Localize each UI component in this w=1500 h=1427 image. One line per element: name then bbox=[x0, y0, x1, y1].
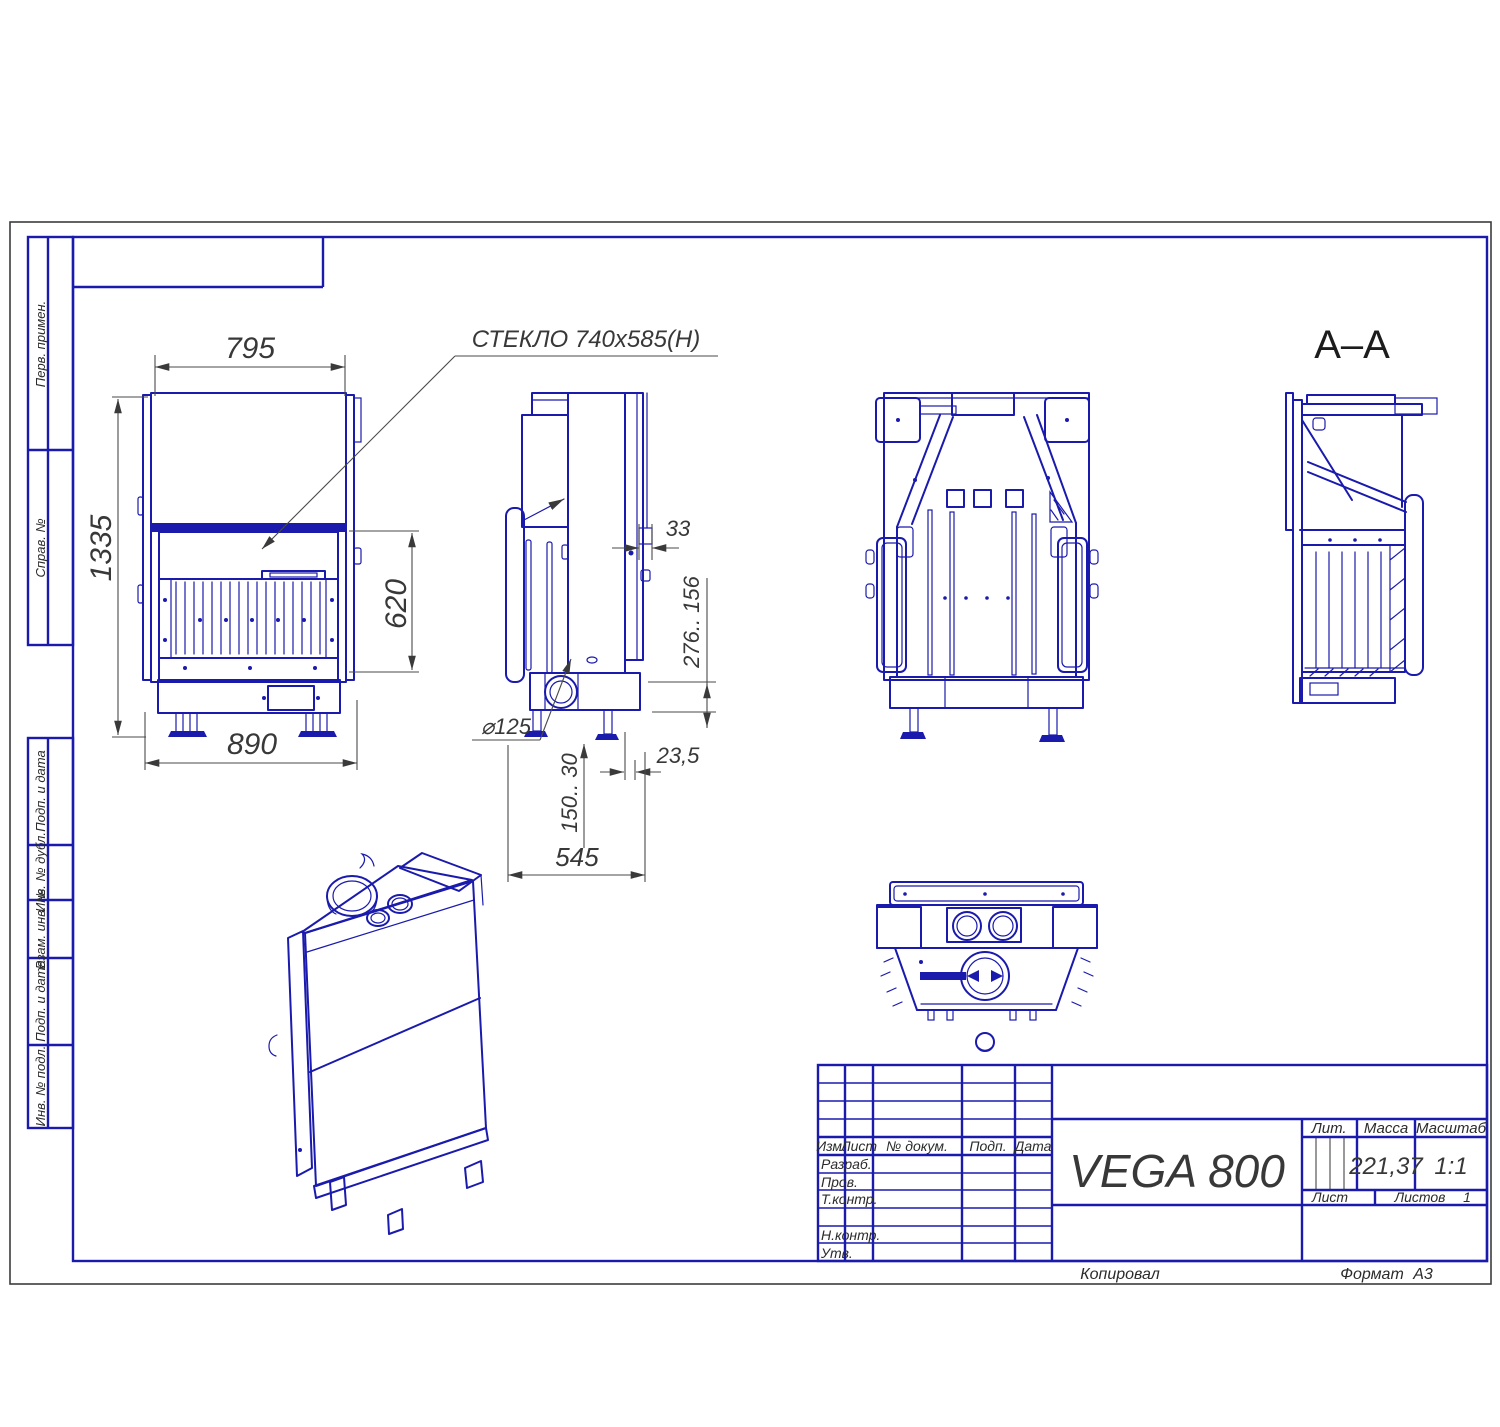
footer-format-label: Формат bbox=[1340, 1266, 1404, 1283]
footer-format-value: А3 bbox=[1412, 1266, 1433, 1283]
section-label: А–А bbox=[1314, 323, 1390, 367]
apron-bolts bbox=[183, 666, 317, 670]
tb-row-prov: Пров. bbox=[821, 1174, 858, 1190]
top-stamp-cell bbox=[73, 237, 323, 287]
tb-row-utv: Утв. bbox=[820, 1245, 853, 1261]
side-view-dimensions: 33 276.. 156 ⌀125 150.. 30 23,5 545 bbox=[472, 516, 716, 882]
tb-row-nkontr: Н.контр. bbox=[821, 1227, 880, 1243]
back-view bbox=[866, 393, 1098, 742]
tb-sheets-value: 1 bbox=[1463, 1189, 1471, 1205]
isometric-view bbox=[269, 853, 488, 1234]
footer-copied: Копировал bbox=[1080, 1266, 1160, 1283]
dim-leg-range: 150.. 30 bbox=[557, 752, 582, 832]
dim-base-width: 890 bbox=[227, 728, 277, 761]
margin-label: Взам. инв. № bbox=[33, 889, 48, 969]
margin-label: Инв. № подл. bbox=[33, 1046, 48, 1127]
back-dots bbox=[913, 476, 1050, 600]
title-block: Изм. Лист № докум. Подп. Дата Разраб. Пр… bbox=[816, 1065, 1487, 1261]
tb-scale-label: Масштаб bbox=[1416, 1120, 1487, 1137]
tb-col-data: Дата bbox=[1013, 1138, 1052, 1154]
tb-col-podp: Подп. bbox=[969, 1138, 1006, 1154]
dim-wall-thickness: 33 bbox=[666, 516, 691, 541]
section-view: А–А bbox=[1286, 323, 1437, 703]
top-view bbox=[877, 882, 1097, 1051]
margin-label: Перв. примен. bbox=[33, 301, 48, 387]
tb-scale-value: 1:1 bbox=[1434, 1153, 1467, 1180]
section-dots bbox=[1328, 538, 1382, 542]
tb-col-list: Лист bbox=[840, 1138, 877, 1154]
drawing-sheet: Перв. примен. Справ. № Подп. и дата Инв.… bbox=[0, 0, 1500, 1427]
margin-label: Подп. и дата bbox=[33, 750, 48, 831]
dim-flue-diameter: ⌀125 bbox=[481, 714, 532, 739]
tb-sheets-label: Листов bbox=[1394, 1189, 1446, 1205]
tb-lit-label: Лит. bbox=[1310, 1120, 1346, 1137]
dim-height-range: 276.. 156 bbox=[679, 575, 704, 669]
dim-depth: 545 bbox=[555, 842, 599, 872]
tb-doc-name: VEGA 800 bbox=[1069, 1145, 1285, 1197]
tb-mass-value: 221,37 bbox=[1348, 1153, 1424, 1180]
margin-label: Справ. № bbox=[33, 518, 48, 577]
margin-label: Подп. и дата bbox=[33, 960, 48, 1041]
dim-front-width: 795 bbox=[225, 332, 275, 365]
glass-callout: СТЕКЛО 740x585(Н) bbox=[472, 326, 701, 353]
top-view-dots bbox=[903, 892, 1065, 896]
dim-front-height: 1335 bbox=[85, 514, 118, 581]
dim-door-height: 620 bbox=[380, 579, 413, 629]
side-view bbox=[506, 393, 652, 740]
tb-row-razrab: Разраб. bbox=[821, 1156, 872, 1172]
dim-offset: 23,5 bbox=[656, 743, 701, 768]
footer-strip: Копировал Формат А3 bbox=[1080, 1266, 1433, 1283]
tb-mass-label: Масса bbox=[1364, 1120, 1408, 1137]
tb-row-tkontr: Т.контр. bbox=[821, 1191, 877, 1207]
tb-col-dokum: № докум. bbox=[886, 1138, 948, 1154]
tb-sheet-label: Лист bbox=[1311, 1189, 1348, 1205]
front-view bbox=[138, 393, 361, 737]
